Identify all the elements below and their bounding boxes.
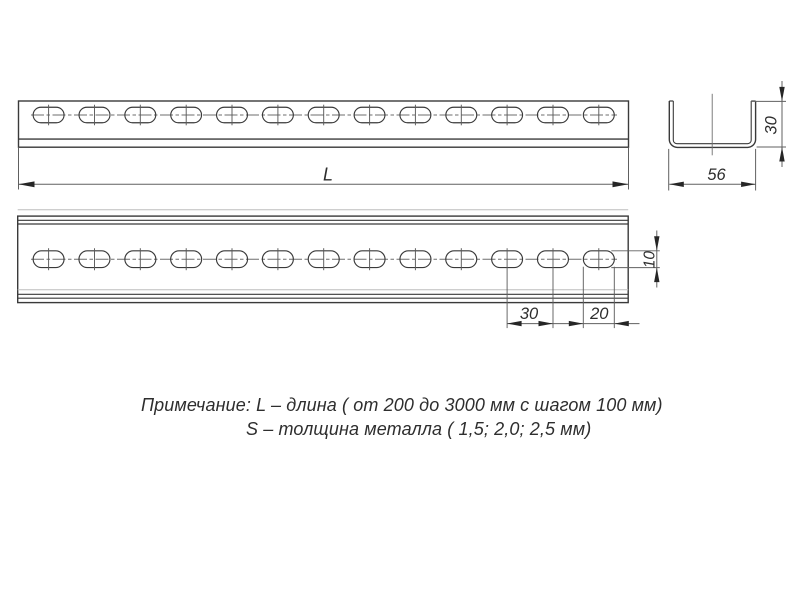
svg-text:30: 30 <box>763 115 781 134</box>
svg-text:30: 30 <box>520 305 539 323</box>
svg-text:Примечание: L – длина ( от 200: Примечание: L – длина ( от 200 до 3000 м… <box>141 395 663 415</box>
svg-text:L: L <box>323 165 333 185</box>
svg-text:56: 56 <box>707 166 726 184</box>
svg-text:20: 20 <box>589 305 609 323</box>
svg-text:10: 10 <box>641 251 658 269</box>
svg-text:S – толщина металла ( 1,5; 2,0: S – толщина металла ( 1,5; 2,0; 2,5 мм) <box>246 419 591 439</box>
